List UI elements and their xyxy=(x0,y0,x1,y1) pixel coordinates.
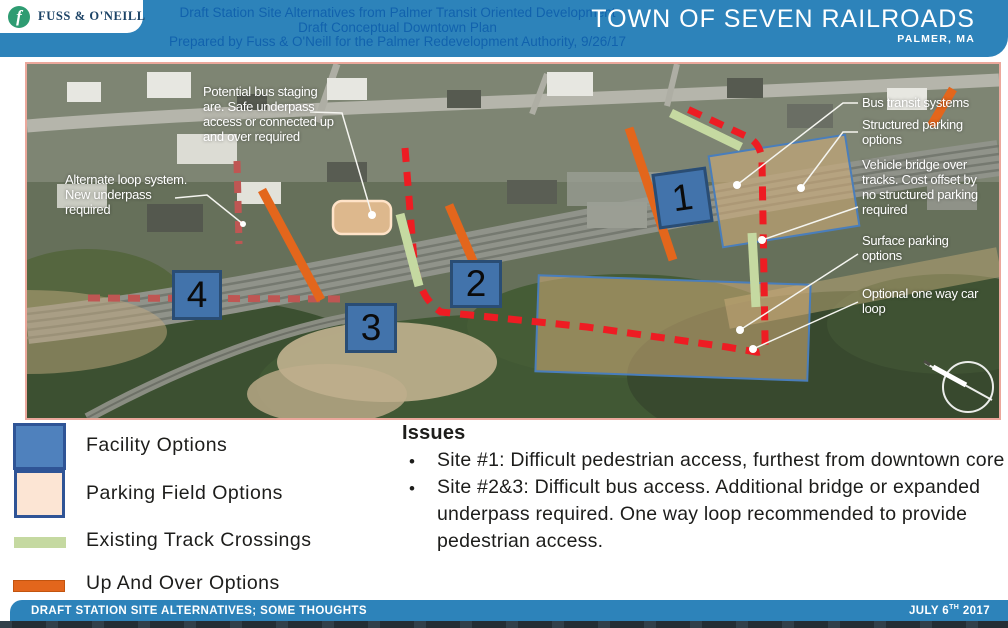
legend-label-facility: Facility Options xyxy=(86,434,227,457)
parking-field-surface xyxy=(535,275,810,380)
issue-item-site-1: Site #1: Difficult pedestrian access, fu… xyxy=(402,447,1008,474)
callout-structured-parking: Structured parking options xyxy=(862,117,984,147)
legend-swatch-parking-field xyxy=(14,470,65,518)
footer-bar: DRAFT STATION SITE ALTERNATIVES; SOME TH… xyxy=(10,600,1008,621)
subtitle-line-1: Draft Station Site Alternatives from Pal… xyxy=(145,6,650,21)
legend-label-track-crossing: Existing Track Crossings xyxy=(86,529,311,552)
legend-swatch-up-and-over xyxy=(13,580,65,592)
callout-potential-bus-staging: Potential bus staging are. Safe underpas… xyxy=(203,84,335,144)
map-graphics xyxy=(27,64,999,418)
issues-section: Issues Site #1: Difficult pedestrian acc… xyxy=(402,420,1008,555)
page-title: TOWN OF SEVEN RAILROADS xyxy=(591,5,975,34)
callout-alternate-loop: Alternate loop system. New underpass req… xyxy=(65,172,193,217)
callout-bus-transit: Bus transit systems xyxy=(862,95,984,110)
legend-swatch-track-crossing xyxy=(14,537,66,548)
issues-list: Site #1: Difficult pedestrian access, fu… xyxy=(402,447,1008,555)
subtitle-line-2: Draft Conceptual Downtown Plan xyxy=(145,21,650,36)
aerial-site-map: 1 2 3 4 Potential bus staging are. Safe … xyxy=(25,62,1001,420)
site-marker-2: 2 xyxy=(450,260,502,308)
bottom-edge-strip xyxy=(0,621,1008,628)
callout-vehicle-bridge: Vehicle bridge over tracks. Cost offset … xyxy=(862,157,984,217)
header-bar: Draft Station Site Alternatives from Pal… xyxy=(0,0,1008,57)
bus-staging-area xyxy=(333,201,391,234)
legend-swatch-facility xyxy=(13,423,66,470)
issue-item-site-2-3: Site #2&3: Difficult bus access. Additio… xyxy=(402,474,1008,555)
subtitle-line-3: Prepared by Fuss & O'Neill for the Palme… xyxy=(145,35,650,50)
slide-subtitle: Draft Station Site Alternatives from Pal… xyxy=(145,6,650,50)
issues-heading: Issues xyxy=(402,422,1008,445)
callout-surface-parking: Surface parking options xyxy=(862,233,984,263)
footer-date: JULY 6TH 2017 xyxy=(909,604,990,617)
fuss-oneill-logo: f FUSS & O'NEILL xyxy=(0,0,143,33)
fuss-oneill-logo-text: FUSS & O'NEILL xyxy=(38,9,146,24)
footer-date-ordinal: TH xyxy=(949,604,959,611)
fuss-oneill-logo-icon: f xyxy=(8,6,30,28)
site-marker-1: 1 xyxy=(651,166,713,229)
site-marker-3: 3 xyxy=(345,303,397,353)
footer-title: DRAFT STATION SITE ALTERNATIVES; SOME TH… xyxy=(31,605,367,617)
legend-label-up-and-over: Up And Over Options xyxy=(86,572,280,595)
slide: Draft Station Site Alternatives from Pal… xyxy=(0,0,1008,628)
legend-label-parking-field: Parking Field Options xyxy=(86,482,283,505)
callout-one-way-loop: Optional one way car loop xyxy=(862,286,984,316)
page-location: PALMER, MA xyxy=(897,33,975,45)
site-marker-4: 4 xyxy=(172,270,222,320)
